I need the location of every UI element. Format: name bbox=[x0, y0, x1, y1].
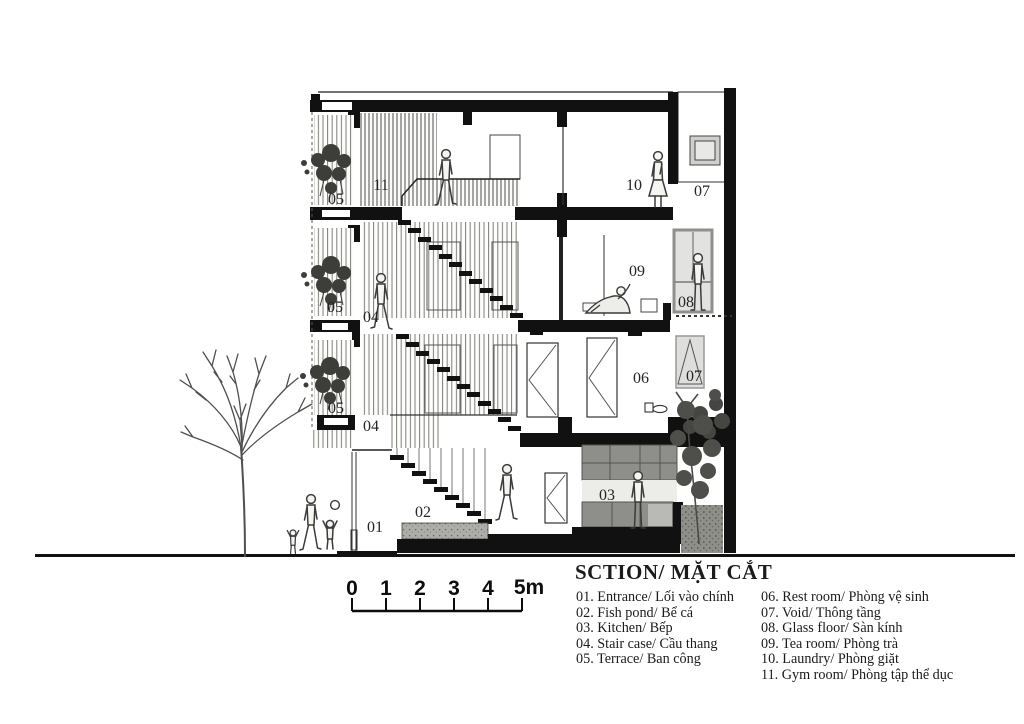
scale-label-3: 3 bbox=[448, 577, 460, 600]
room-label-02: 02 bbox=[415, 504, 431, 521]
legend-item-02: 02. Fish pond/ Bể cá bbox=[576, 606, 734, 622]
kitchen bbox=[572, 445, 680, 540]
room-label-06: 06 bbox=[633, 370, 649, 387]
drawing-title: SCTION/ MẶT CẮT bbox=[575, 560, 772, 585]
legend-item-10: 10. Laundry/ Phòng giặt bbox=[761, 652, 953, 668]
legend-column-2: 06. Rest room/ Phòng vệ sinh 07. Void/ T… bbox=[761, 590, 953, 684]
legend-item-09: 09. Tea room/ Phòng trà bbox=[761, 637, 953, 653]
door-leaf bbox=[527, 343, 558, 417]
room-label-01: 01 bbox=[367, 519, 383, 536]
room-label-05-f4: 05 bbox=[328, 191, 344, 208]
architectural-section-page: 11 10 07 05 05 05 04 04 09 08 06 07 01 0… bbox=[0, 0, 1024, 724]
scale-label-2: 2 bbox=[414, 577, 426, 600]
staircase bbox=[362, 220, 523, 524]
legend-item-08: 08. Glass floor/ Sàn kính bbox=[761, 621, 953, 637]
legend-item-07: 07. Void/ Thông tầng bbox=[761, 606, 953, 622]
left-tree bbox=[180, 350, 312, 556]
scale-bar: 0 1 2 3 4 5m bbox=[346, 576, 544, 611]
scale-label-5m: 5m bbox=[514, 576, 544, 599]
legend-item-06: 06. Rest room/ Phòng vệ sinh bbox=[761, 590, 953, 606]
room-label-03: 03 bbox=[599, 487, 615, 504]
entrance bbox=[337, 450, 397, 556]
room-label-07-top: 07 bbox=[694, 183, 710, 200]
room-label-04-f2: 04 bbox=[363, 418, 379, 435]
legend-item-11: 11. Gym room/ Phòng tập thể dục bbox=[761, 668, 953, 684]
laundry-room bbox=[563, 127, 667, 207]
room-label-05-f3: 05 bbox=[327, 299, 343, 316]
stair-steps-ground bbox=[390, 448, 492, 524]
roof bbox=[310, 92, 678, 112]
room-label-04-f3: 04 bbox=[363, 309, 379, 326]
person-reclining bbox=[586, 284, 630, 313]
toilet bbox=[645, 403, 667, 413]
room-label-05-f2: 05 bbox=[328, 400, 344, 417]
terraces bbox=[300, 112, 354, 448]
person-ground-floor bbox=[496, 465, 517, 520]
legend-item-05: 05. Terrace/ Ban công bbox=[576, 652, 734, 668]
scale-label-0: 0 bbox=[346, 577, 358, 600]
room-label-11: 11 bbox=[373, 177, 388, 194]
door-leaf bbox=[587, 338, 617, 417]
legend-item-01: 01. Entrance/ Lối vào chính bbox=[576, 590, 734, 606]
legend-column-1: 01. Entrance/ Lối vào chính 02. Fish pon… bbox=[576, 590, 734, 668]
legend-item-04: 04. Stair case/ Cầu thang bbox=[576, 637, 734, 653]
room-label-08: 08 bbox=[678, 294, 694, 311]
scale-label-4: 4 bbox=[482, 577, 494, 600]
building-section: 11 10 07 05 05 05 04 04 09 08 06 07 01 0… bbox=[300, 88, 736, 556]
person-laundry bbox=[649, 152, 667, 207]
ground-door bbox=[545, 473, 567, 523]
ground-line bbox=[35, 554, 1015, 557]
stair-landing-screen bbox=[402, 179, 520, 206]
room-label-09: 09 bbox=[629, 263, 645, 280]
ball bbox=[331, 501, 340, 510]
scale-label-1: 1 bbox=[380, 577, 392, 600]
room-label-10: 10 bbox=[626, 177, 642, 194]
family-figures bbox=[287, 495, 339, 554]
legend-item-03: 03. Kitchen/ Bếp bbox=[576, 621, 734, 637]
room-label-07-f2: 07 bbox=[686, 368, 702, 385]
